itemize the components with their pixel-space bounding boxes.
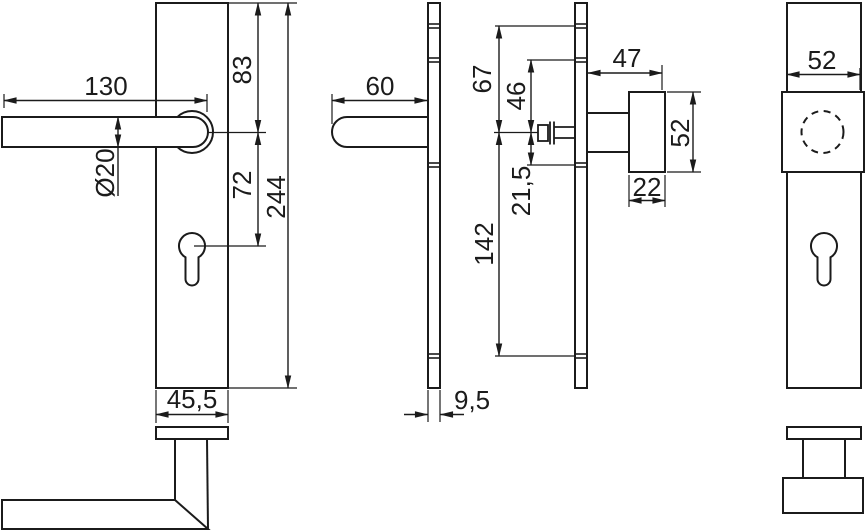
dim-label-top-to-knob-axis: 67 [467,65,497,94]
dim-label-plate-width: 45,5 [167,384,218,414]
view-side-exterior: 67 46 21,5 142 47 22 52 [467,3,701,388]
dim-label-knob-width: 52 [808,45,837,75]
lever-grip-top [2,500,208,529]
fixing-bolt [538,122,576,145]
dim-label-plate-thickness: 9,5 [454,385,490,415]
backplate-section [156,427,228,439]
dim-label-lever-length: 130 [84,71,127,101]
lever-handle-front [2,117,208,147]
dim-label-knob-projection: 47 [613,43,642,73]
bolt-head [538,125,548,141]
view-top-knob [783,427,863,513]
dim-label-axis-to-lower-ref: 21,5 [506,166,536,217]
dim-label-top-to-axis: 83 [227,56,257,85]
backplate-outline [156,3,228,388]
dim-label-lever-projection: 60 [366,71,395,101]
dim-label-lever-diameter: Ø20 [90,148,120,197]
dim-label-knob-depth: 22 [633,172,662,202]
dim-label-axis-to-cylinder: 72 [227,171,257,200]
dim-label-upper-ref-to-axis: 46 [501,82,531,111]
lever-handle-side [332,117,428,147]
knob-neck-top [803,439,845,478]
knob-body-side [629,92,665,172]
dim-label-axis-to-bottom-ref: 142 [469,222,499,265]
technical-drawing-page: 130 Ø20 83 72 244 45,5 60 9,5 [0,0,867,531]
knob-body-top [783,478,863,513]
dim-label-plate-height: 244 [261,175,291,218]
view-top-lever [2,427,228,529]
view-front-exterior: 52 [782,3,864,388]
knob-square-front [782,92,864,172]
backplate-edge-outline [428,3,440,388]
dim-label-knob-height: 52 [665,119,695,148]
exterior-plate-section [787,427,861,439]
view-front-interior: 130 Ø20 83 72 244 45,5 [2,3,297,423]
exterior-plate-edge-outline [575,3,587,388]
lever-neck-right [207,439,208,529]
knob-neck-side [587,113,629,152]
door-handle-set-drawing: 130 Ø20 83 72 244 45,5 60 9,5 [0,0,867,531]
